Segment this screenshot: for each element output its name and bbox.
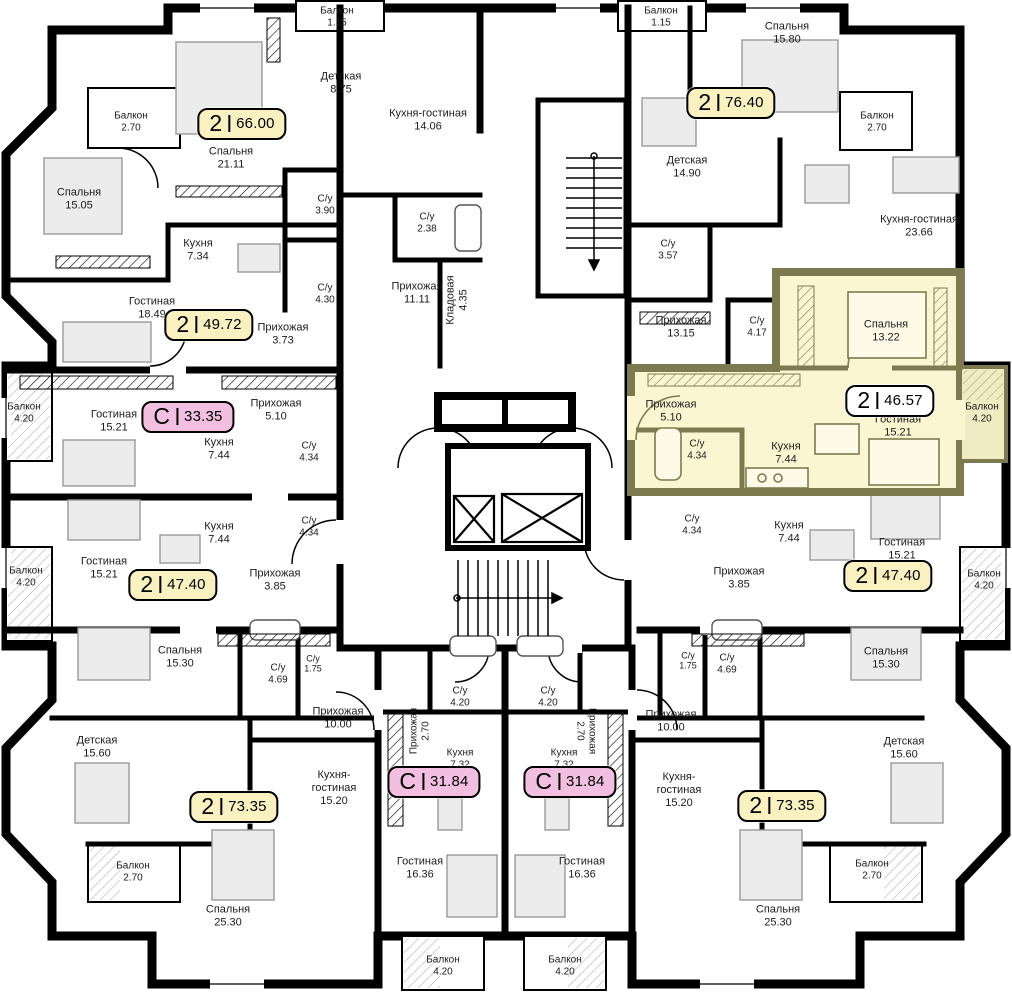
room-label: Балкон 2.70 xyxy=(114,110,148,133)
room-area: 13.22 xyxy=(864,331,908,344)
room-label: Спальня 13.22 xyxy=(864,318,908,344)
room-area: 16.36 xyxy=(559,868,605,881)
room-name: Прихожая xyxy=(714,565,765,578)
room-label: С/у 4.34 xyxy=(687,438,706,461)
badge-rooms-count: С xyxy=(399,770,416,793)
badge-area: 46.57 xyxy=(884,392,923,409)
room-area: 4.34 xyxy=(299,527,318,539)
room-name: Балкон xyxy=(116,860,150,872)
room-label: Прихожая 10.00 xyxy=(313,705,364,731)
room-label: С/у 3.90 xyxy=(315,193,334,216)
apartment-badge[interactable]: 2 47.40 xyxy=(128,569,217,601)
room-area: 3.90 xyxy=(315,205,334,217)
room-name: Спальня xyxy=(756,903,800,916)
room-name: Прихожая xyxy=(392,280,443,293)
room-label: Балкон 4.20 xyxy=(548,954,582,977)
badge-divider-icon xyxy=(717,94,719,111)
room-name: Кухня xyxy=(204,436,233,449)
room-name: Детская xyxy=(321,70,362,83)
room-label: С/у 4.20 xyxy=(450,685,469,708)
badge-area: 31.84 xyxy=(566,773,605,790)
room-area: 3.73 xyxy=(258,334,309,347)
room-label: С/у 1.75 xyxy=(304,654,322,675)
room-name: С/у xyxy=(315,193,334,205)
room-name: Спальня xyxy=(158,644,202,657)
room-area: 4.20 xyxy=(450,697,469,709)
room-name: С/у xyxy=(299,440,318,452)
room-name: С/у xyxy=(717,652,736,664)
room-name: С/у xyxy=(658,238,677,250)
room-label: Детская 15.60 xyxy=(884,735,925,761)
room-name: Балкон xyxy=(4,565,48,577)
room-label: Кухня-гостиная 23.66 xyxy=(854,213,984,239)
room-name: С/у xyxy=(679,651,697,661)
badge-area: 73.35 xyxy=(228,798,267,815)
room-label: Прихожая 3.85 xyxy=(714,565,765,591)
room-area: 15.20 xyxy=(648,796,710,809)
room-label: Прихожая 3.85 xyxy=(250,567,301,593)
room-name: Кухня xyxy=(447,747,474,759)
room-area: 2.70 xyxy=(860,122,894,134)
room-name: Балкон xyxy=(114,110,148,122)
room-label: Балкон 1.15 xyxy=(644,5,678,28)
apartment-badge[interactable]: 2 76.40 xyxy=(686,87,775,119)
badge-rooms-count: 2 xyxy=(855,564,868,587)
badge-area: 47.40 xyxy=(882,567,921,584)
apartment-badge[interactable]: 2 47.40 xyxy=(843,560,932,592)
badge-divider-icon xyxy=(228,115,230,132)
room-area: 7.44 xyxy=(774,532,803,545)
badge-area: 73.35 xyxy=(776,797,815,814)
room-area: 15.05 xyxy=(57,199,101,212)
badge-rooms-count: 2 xyxy=(749,794,762,817)
room-area: 1.15 xyxy=(320,17,354,29)
badge-rooms-count: 2 xyxy=(698,91,711,114)
room-area: 15.21 xyxy=(91,421,137,434)
room-area: 2.38 xyxy=(417,223,436,235)
room-name: С/у xyxy=(299,515,318,527)
apartment-badge[interactable]: С 31.84 xyxy=(387,766,480,798)
badge-rooms-count: С xyxy=(153,405,170,428)
room-name: Детская xyxy=(667,154,708,167)
room-label: Прихожая 5.10 xyxy=(251,397,302,423)
room-name: С/у xyxy=(687,438,706,450)
badge-area: 33.35 xyxy=(184,408,223,425)
room-label: Спальня 25.30 xyxy=(206,903,250,929)
room-area: 4.30 xyxy=(315,294,334,306)
room-label: С/у 4.69 xyxy=(268,662,287,685)
room-name: Кухня-гостиная xyxy=(648,771,710,797)
room-name: Прихожая xyxy=(586,708,598,754)
badge-area: 47.40 xyxy=(167,576,206,593)
room-label: Прихожая 2.70 xyxy=(574,708,597,754)
badge-divider-icon xyxy=(176,408,178,425)
room-area: 2.70 xyxy=(114,122,148,134)
room-name: Балкон xyxy=(960,401,1004,413)
room-name: С/у xyxy=(304,654,322,664)
room-label: Гостиная 15.21 xyxy=(91,408,137,434)
room-area: 14.90 xyxy=(667,167,708,180)
room-name: Спальня xyxy=(864,645,908,658)
room-label: Спальня 15.30 xyxy=(158,644,202,670)
room-area: 15.20 xyxy=(303,794,365,807)
room-name: Балкон xyxy=(644,5,678,17)
room-label: Гостиная 16.36 xyxy=(559,855,605,881)
room-label: Балкон 4.20 xyxy=(960,401,1004,424)
room-label: Балкон 4.20 xyxy=(2,401,46,424)
room-area: 4.20 xyxy=(962,580,1006,592)
badge-rooms-count: 2 xyxy=(209,112,222,135)
room-area: 15.21 xyxy=(875,426,921,439)
room-area: 3.85 xyxy=(250,580,301,593)
room-area: 8.75 xyxy=(321,83,362,96)
room-label: С/у 4.34 xyxy=(682,513,701,536)
room-name: Гостиная xyxy=(559,855,605,868)
room-area: 14.06 xyxy=(388,120,468,133)
floorplan-walls xyxy=(0,0,1012,1000)
apartment-badge[interactable]: С 31.84 xyxy=(523,766,616,798)
room-label: Кухня 7.44 xyxy=(204,436,233,462)
room-label: Кухня 7.44 xyxy=(771,440,800,466)
room-name: С/у xyxy=(682,513,701,525)
room-name: Кухня-гостиная xyxy=(388,107,468,120)
room-area: 4.34 xyxy=(299,452,318,464)
upper-staircase-icon xyxy=(538,100,626,296)
room-label: С/у 4.17 xyxy=(747,315,766,338)
room-label: Балкон 2.70 xyxy=(116,860,150,883)
room-label: Кухня-гостиная 14.06 xyxy=(388,107,468,133)
badge-divider-icon xyxy=(558,773,560,790)
room-label: Прихожая 2.70 xyxy=(408,708,431,754)
room-label: Спальня 15.30 xyxy=(864,645,908,671)
room-area: 2.70 xyxy=(420,708,432,754)
room-area: 7.44 xyxy=(204,533,233,546)
badge-area: 49.72 xyxy=(203,316,242,333)
room-area: 7.44 xyxy=(204,449,233,462)
room-label: С/у 4.69 xyxy=(717,652,736,675)
room-name: Кухня-гостиная xyxy=(303,769,365,795)
room-label: Прихожая 13.15 xyxy=(656,314,707,340)
room-area: 15.21 xyxy=(81,568,127,581)
badge-rooms-count: 2 xyxy=(140,573,153,596)
room-name: Кухня xyxy=(771,440,800,453)
room-name: С/у xyxy=(450,685,469,697)
room-label: С/у 3.57 xyxy=(658,238,677,261)
room-label: Гостиная 15.21 xyxy=(879,536,925,562)
room-area: 4.20 xyxy=(4,577,48,589)
room-name: Гостиная xyxy=(129,295,175,308)
room-name: Прихожая xyxy=(656,314,707,327)
room-label: С/у 4.20 xyxy=(538,685,557,708)
room-label: Кухня-гостиная 15.20 xyxy=(303,769,365,807)
room-area: 3.85 xyxy=(714,578,765,591)
room-name: С/у xyxy=(315,282,334,294)
room-label: Спальня 25.30 xyxy=(756,903,800,929)
room-name: Прихожая xyxy=(646,398,697,411)
room-name: Балкон xyxy=(548,954,582,966)
room-area: 13.15 xyxy=(656,327,707,340)
room-label: Прихожая 11.11 xyxy=(392,280,443,306)
room-label: Балкон 4.20 xyxy=(962,568,1006,591)
room-label: Кухня 7.44 xyxy=(204,520,233,546)
room-label: Балкон 4.20 xyxy=(4,565,48,588)
room-area: 21.11 xyxy=(209,158,253,171)
room-area: 4.20 xyxy=(2,413,46,425)
room-label: Прихожая 3.73 xyxy=(258,321,309,347)
room-label: Кухня 7.34 xyxy=(183,237,212,263)
room-area: 1.75 xyxy=(304,664,322,674)
badge-area: 31.84 xyxy=(430,773,469,790)
room-area: 3.57 xyxy=(658,250,677,262)
room-name: Прихожая xyxy=(313,705,364,718)
room-area: 15.60 xyxy=(884,748,925,761)
room-area: 5.10 xyxy=(251,410,302,423)
room-label: Спальня 21.11 xyxy=(209,145,253,171)
room-name: С/у xyxy=(538,685,557,697)
room-area: 4.69 xyxy=(268,674,287,686)
room-label: Кладовая 4.35 xyxy=(444,275,470,324)
room-area: 11.11 xyxy=(392,293,443,306)
badge-area: 76.40 xyxy=(725,94,764,111)
room-name: Кухня xyxy=(551,747,578,759)
badge-area: 66.00 xyxy=(236,115,275,132)
room-name: Балкон xyxy=(855,858,889,870)
room-area: 16.36 xyxy=(397,868,443,881)
room-area: 4.20 xyxy=(548,966,582,978)
room-label: Детская 14.90 xyxy=(667,154,708,180)
room-area: 1.15 xyxy=(644,17,678,29)
room-name: Спальня xyxy=(57,186,101,199)
room-area: 4.69 xyxy=(717,664,736,676)
room-area: 4.34 xyxy=(682,525,701,537)
badge-rooms-count: 2 xyxy=(201,795,214,818)
room-area: 4.20 xyxy=(960,413,1004,425)
apartment-badge[interactable]: С 33.35 xyxy=(141,401,234,433)
room-name: С/у xyxy=(268,662,287,674)
room-name: Прихожая xyxy=(408,708,420,754)
room-area: 7.34 xyxy=(183,250,212,263)
room-name: Кухня xyxy=(183,237,212,250)
room-area: 10.00 xyxy=(313,718,364,731)
room-name: Гостиная xyxy=(81,555,127,568)
room-label: Балкон 4.20 xyxy=(426,954,460,977)
floor-plan: Балкон 1.15 Балкон 1.15 Спальня 15.80 Де… xyxy=(0,0,1012,1000)
apartment-badge[interactable]: 2 73.35 xyxy=(189,791,278,823)
room-area: 2.70 xyxy=(855,870,889,882)
room-area: 10.00 xyxy=(646,721,697,734)
room-name: Спальня xyxy=(864,318,908,331)
room-label: С/у 4.30 xyxy=(315,282,334,305)
badge-divider-icon xyxy=(876,392,878,409)
room-area: 4.17 xyxy=(747,327,766,339)
room-area: 25.30 xyxy=(756,916,800,929)
room-label: Балкон 2.70 xyxy=(855,858,889,881)
badge-divider-icon xyxy=(422,773,424,790)
room-label: Кухня 7.44 xyxy=(774,519,803,545)
room-area: 15.60 xyxy=(77,747,118,760)
room-area: 25.30 xyxy=(206,916,250,929)
room-label: С/у 4.34 xyxy=(299,440,318,463)
room-area: 4.35 xyxy=(457,275,470,324)
room-name: С/у xyxy=(417,211,436,223)
badge-rooms-count: 2 xyxy=(176,313,189,336)
room-name: Спальня xyxy=(206,903,250,916)
room-name: Детская xyxy=(884,735,925,748)
room-name: Прихожая xyxy=(646,708,697,721)
badge-divider-icon xyxy=(159,576,161,593)
room-name: Спальня xyxy=(209,145,253,158)
room-name: Балкон xyxy=(962,568,1006,580)
entrance-vestibule xyxy=(438,396,572,428)
room-name: Гостиная xyxy=(879,536,925,549)
room-area: 7.44 xyxy=(771,453,800,466)
room-label: Гостиная 15.21 xyxy=(875,413,921,439)
room-name: С/у xyxy=(747,315,766,327)
badge-divider-icon xyxy=(874,567,876,584)
room-name: Кухня-гостиная xyxy=(854,213,984,226)
room-area: 4.20 xyxy=(426,966,460,978)
room-label: Прихожая 5.10 xyxy=(646,398,697,424)
room-label: С/у 1.75 xyxy=(679,651,697,672)
room-label: Гостиная 16.36 xyxy=(397,855,443,881)
elevator-core xyxy=(448,446,588,548)
room-label: С/у 2.38 xyxy=(417,211,436,234)
room-name: Кладовая xyxy=(444,275,457,324)
room-label: Кухня-гостиная 15.20 xyxy=(648,771,710,809)
room-area: 15.30 xyxy=(864,658,908,671)
room-name: Спальня xyxy=(765,20,809,33)
room-label: Спальня 15.05 xyxy=(57,186,101,212)
room-label: Прихожая 10.00 xyxy=(646,708,697,734)
room-label: Детская 15.60 xyxy=(77,734,118,760)
badge-divider-icon xyxy=(220,798,222,815)
room-name: Прихожая xyxy=(258,321,309,334)
room-area: 2.70 xyxy=(116,872,150,884)
apartment-badge[interactable]: 2 73.35 xyxy=(737,790,826,822)
apartment-badge[interactable]: 2 66.00 xyxy=(197,108,286,140)
badge-rooms-count: 2 xyxy=(857,389,870,412)
apartment-badge[interactable]: 2 49.72 xyxy=(164,309,253,341)
room-name: Гостиная xyxy=(91,408,137,421)
room-label: Спальня 15.80 xyxy=(765,20,809,46)
badge-divider-icon xyxy=(768,797,770,814)
room-label: Детская 8.75 xyxy=(321,70,362,96)
room-area: 5.10 xyxy=(646,411,697,424)
room-name: Балкон xyxy=(320,5,354,17)
room-label: Балкон 2.70 xyxy=(860,110,894,133)
room-name: Кухня xyxy=(204,520,233,533)
room-name: Балкон xyxy=(2,401,46,413)
room-area: 1.75 xyxy=(679,661,697,671)
room-name: Детская xyxy=(77,734,118,747)
room-label: Балкон 1.15 xyxy=(320,5,354,28)
room-area: 15.80 xyxy=(765,33,809,46)
badge-divider-icon xyxy=(195,316,197,333)
room-label: С/у 4.34 xyxy=(299,515,318,538)
room-area: 4.20 xyxy=(538,697,557,709)
room-name: Кухня xyxy=(774,519,803,532)
room-area: 4.34 xyxy=(687,450,706,462)
room-name: Балкон xyxy=(426,954,460,966)
apartment-badge[interactable]: 2 46.57 xyxy=(845,385,934,417)
room-name: Гостиная xyxy=(397,855,443,868)
room-label: Гостиная 15.21 xyxy=(81,555,127,581)
room-area: 15.30 xyxy=(158,657,202,670)
room-name: Балкон xyxy=(860,110,894,122)
room-name: Прихожая xyxy=(250,567,301,580)
room-area: 23.66 xyxy=(854,226,984,239)
room-name: Прихожая xyxy=(251,397,302,410)
badge-rooms-count: С xyxy=(535,770,552,793)
